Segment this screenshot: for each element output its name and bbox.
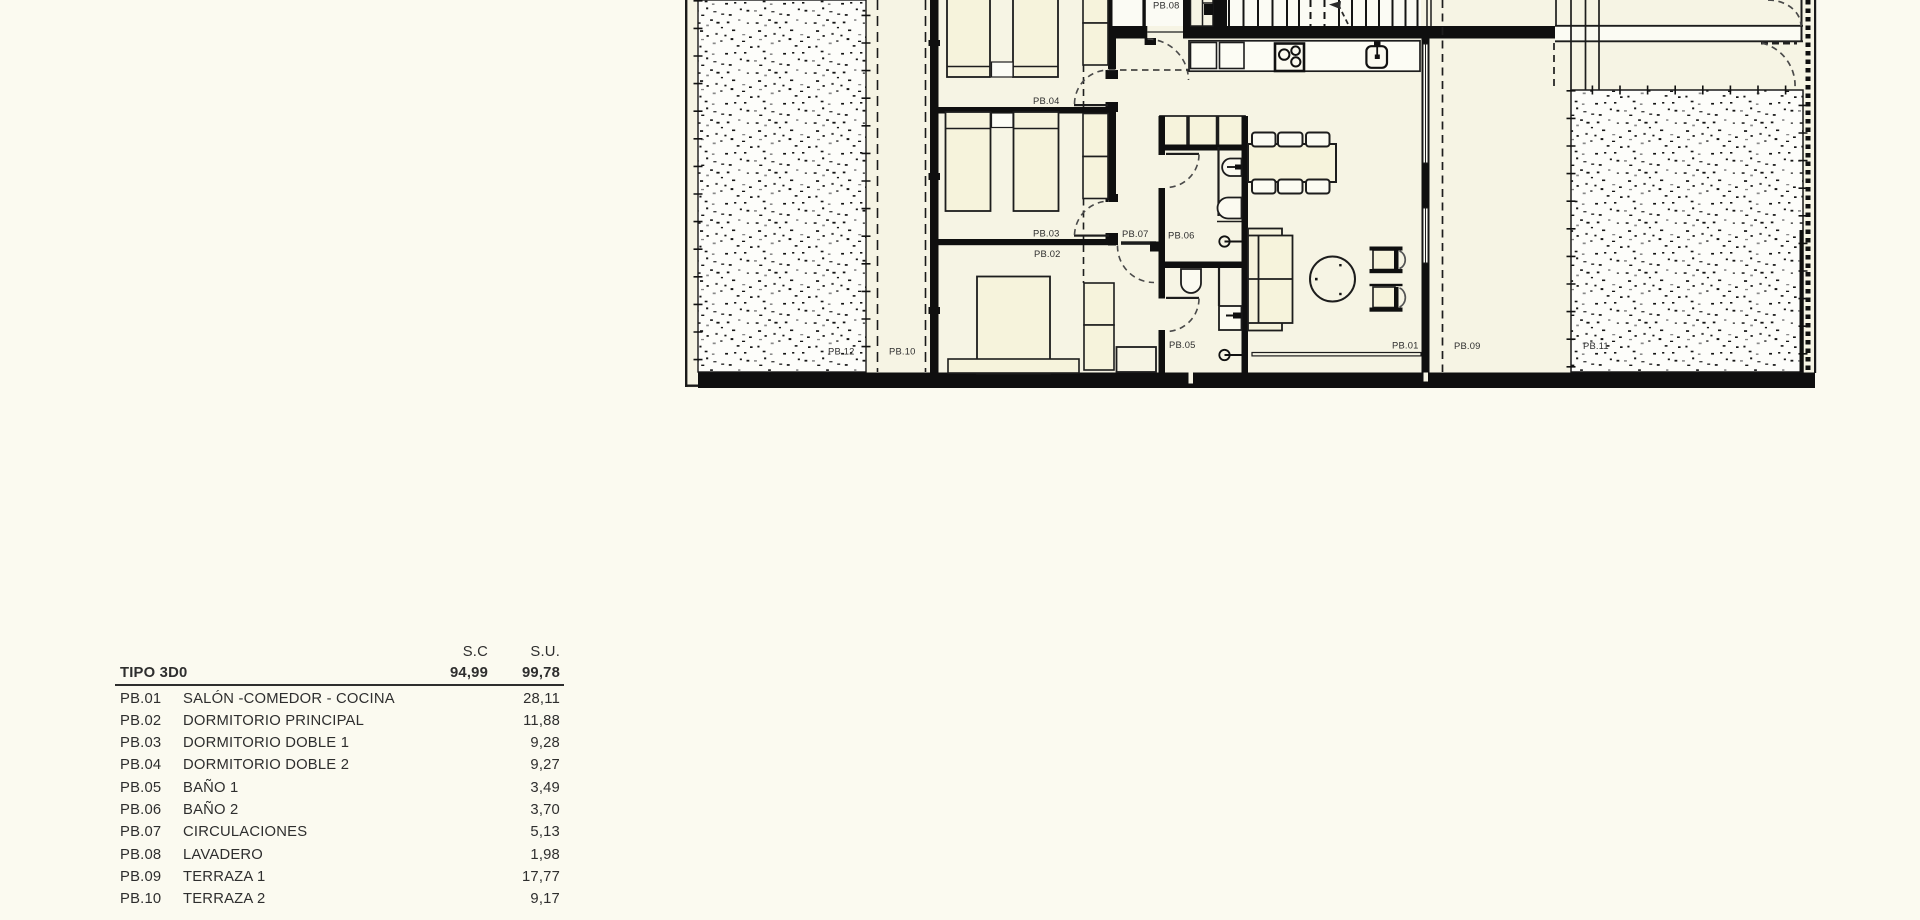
svg-text:PB.07: PB.07 (1122, 228, 1149, 239)
svg-text:PB.04: PB.04 (1033, 95, 1060, 106)
svg-text:PB.01: PB.01 (1392, 340, 1419, 351)
svg-text:PB.11: PB.11 (1583, 340, 1609, 351)
svg-text:PB.12: PB.12 (828, 346, 855, 357)
svg-text:PB.09: PB.09 (1454, 340, 1481, 351)
svg-text:PB.10: PB.10 (889, 346, 916, 357)
svg-text:PB.08: PB.08 (1153, 0, 1180, 11)
svg-text:PB.06: PB.06 (1168, 230, 1195, 241)
svg-text:PB.02: PB.02 (1034, 248, 1061, 259)
svg-text:PB.05: PB.05 (1169, 339, 1196, 350)
svg-text:PB.03: PB.03 (1033, 228, 1060, 239)
